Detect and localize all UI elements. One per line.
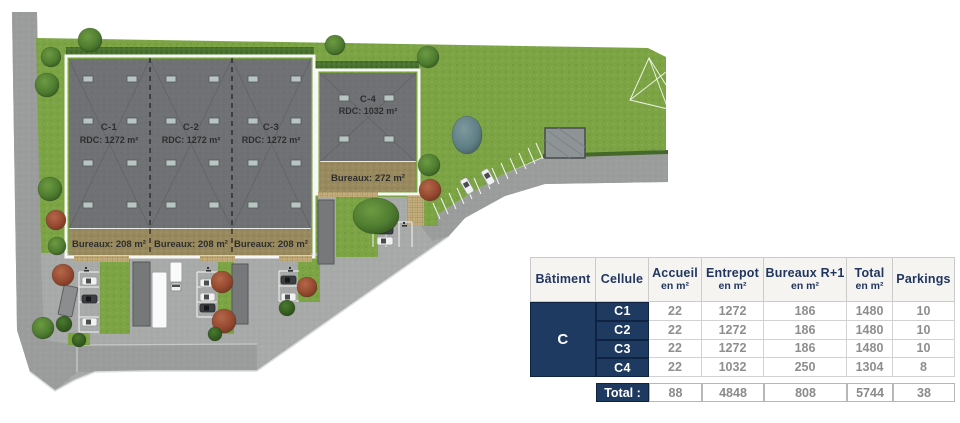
- row-c4-parkings: 8: [893, 358, 955, 377]
- cell-c4-rdc: RDC: 1032 m²: [339, 106, 398, 116]
- cell-c3-bureaux: Bureaux: 208 m²: [234, 239, 308, 250]
- row-c1-bureaux: 186: [764, 302, 847, 321]
- technical-structure: [545, 128, 585, 158]
- building-c4: C-4 RDC: 1032 m² Bureaux: 272 m²: [317, 70, 419, 194]
- surface-table-total: Total : 88 4848 808 5744 38: [530, 383, 956, 402]
- surface-table-main: Bâtiment Cellule Accueil en m² Entrepot …: [530, 257, 956, 377]
- total-label: Total :: [596, 383, 649, 402]
- total-accueil: 88: [649, 383, 702, 402]
- cell-c1-bureaux: Bureaux: 208 m²: [72, 239, 146, 250]
- total-total: 5744: [847, 383, 893, 402]
- row-c1-total: 1480: [847, 302, 893, 321]
- building-c-cell: C: [530, 302, 596, 377]
- header-bureaux-unit: en m²: [791, 281, 819, 292]
- row-c2-accueil: 22: [649, 321, 702, 340]
- row-c1-parkings: 10: [893, 302, 955, 321]
- row-c2-total: 1480: [847, 321, 893, 340]
- row-c2-parkings: 10: [893, 321, 955, 340]
- header-batiment: Bâtiment: [530, 257, 596, 302]
- building-main: C-1 RDC: 1272 m² Bureaux: 208 m² C-2 RDC…: [66, 56, 314, 257]
- cell-c4-bureaux: Bureaux: 272 m²: [331, 173, 405, 184]
- header-accueil-unit: en m²: [661, 281, 689, 292]
- row-c3-accueil: 22: [649, 340, 702, 359]
- header-entrepot-unit: en m²: [718, 281, 746, 292]
- header-bureaux-label: Bureaux R+1: [766, 267, 845, 280]
- total-bureaux: 808: [764, 383, 847, 402]
- row-c2-cellule: C2: [596, 321, 649, 340]
- row-c2-bureaux: 186: [764, 321, 847, 340]
- header-cellule-label: Cellule: [601, 273, 643, 286]
- row-c1-cellule: C1: [596, 302, 649, 321]
- row-c3-cellule: C3: [596, 340, 649, 359]
- header-bureaux: Bureaux R+1 en m²: [764, 257, 847, 302]
- header-accueil-label: Accueil: [652, 267, 698, 280]
- cell-c3-label: C-3: [263, 122, 279, 133]
- row-c1-entrepot: 1272: [702, 302, 764, 321]
- header-parkings: Parkings: [893, 257, 955, 302]
- row-c3-entrepot: 1272: [702, 340, 764, 359]
- cell-c1-label: C-1: [101, 122, 118, 133]
- site-plan-page: C-1 RDC: 1272 m² Bureaux: 208 m² C-2 RDC…: [0, 0, 960, 423]
- row-c3-total: 1480: [847, 340, 893, 359]
- cell-c4-label: C-4: [360, 94, 377, 105]
- header-entrepot: Entrepot en m²: [702, 257, 764, 302]
- row-c4-accueil: 22: [649, 358, 702, 377]
- cell-c2-bureaux: Bureaux: 208 m²: [154, 239, 228, 250]
- row-c3-parkings: 10: [893, 340, 955, 359]
- header-entrepot-label: Entrepot: [706, 267, 759, 280]
- row-c4-bureaux: 250: [764, 358, 847, 377]
- cell-c2-rdc: RDC: 1272 m²: [162, 135, 221, 145]
- header-total-label: Total: [855, 267, 885, 280]
- blue-bush: [452, 116, 482, 154]
- header-total: Total en m²: [847, 257, 893, 302]
- header-accueil: Accueil en m²: [649, 257, 702, 302]
- row-c4-entrepot: 1032: [702, 358, 764, 377]
- row-c4-total: 1304: [847, 358, 893, 377]
- row-c3-bureaux: 186: [764, 340, 847, 359]
- header-parkings-label: Parkings: [896, 273, 950, 286]
- row-c4-cellule: C4: [596, 358, 649, 377]
- road-bottom: [77, 344, 257, 372]
- surface-table: Bâtiment Cellule Accueil en m² Entrepot …: [530, 257, 956, 402]
- header-total-unit: en m²: [855, 281, 883, 292]
- header-batiment-label: Bâtiment: [535, 273, 590, 286]
- total-parkings: 38: [893, 383, 955, 402]
- cell-c2-label: C-2: [183, 122, 199, 133]
- total-entrepot: 4848: [702, 383, 764, 402]
- header-cellule: Cellule: [596, 257, 649, 302]
- row-c1-accueil: 22: [649, 302, 702, 321]
- cell-c1-rdc: RDC: 1272 m²: [80, 135, 139, 145]
- row-c2-entrepot: 1272: [702, 321, 764, 340]
- cell-c3-rdc: RDC: 1272 m²: [242, 135, 301, 145]
